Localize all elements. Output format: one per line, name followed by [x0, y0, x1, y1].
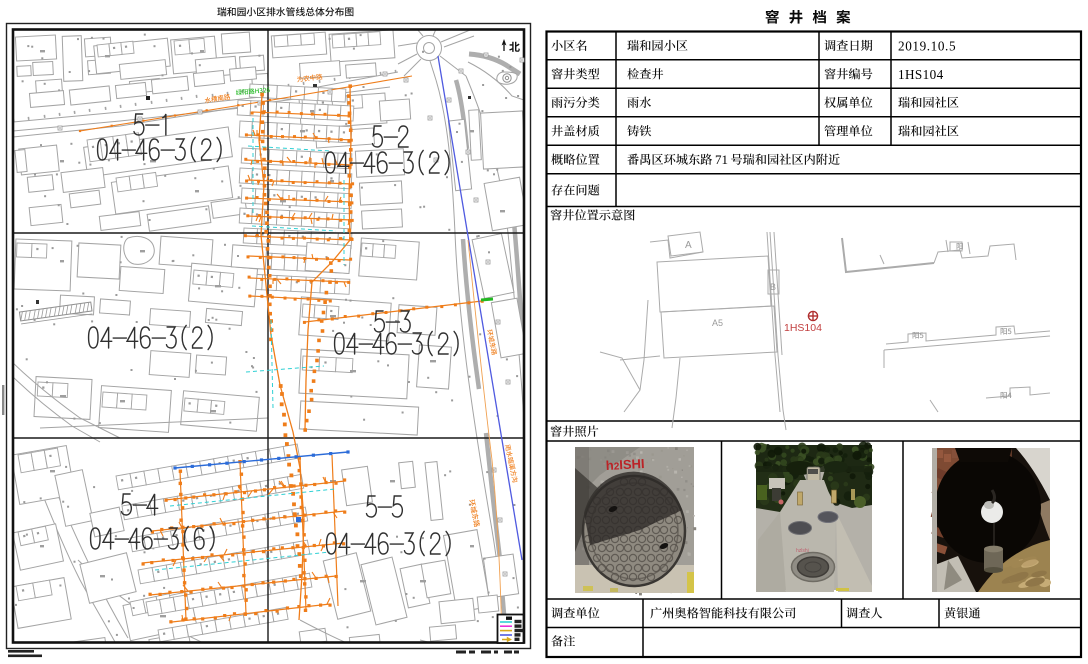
svg-text:h2ISHI: h2ISHI — [605, 456, 645, 473]
svg-text:A5: A5 — [712, 318, 723, 328]
svg-text:1HS104: 1HS104 — [898, 67, 944, 82]
svg-text:1HS104: 1HS104 — [784, 322, 822, 334]
svg-text:2019.10.5: 2019.10.5 — [898, 39, 956, 54]
svg-text:B: B — [770, 282, 776, 292]
svg-text:71: 71 — [715, 152, 728, 167]
svg-text:hzlshi: hzlshi — [796, 548, 809, 554]
svg-text:A: A — [685, 240, 692, 251]
